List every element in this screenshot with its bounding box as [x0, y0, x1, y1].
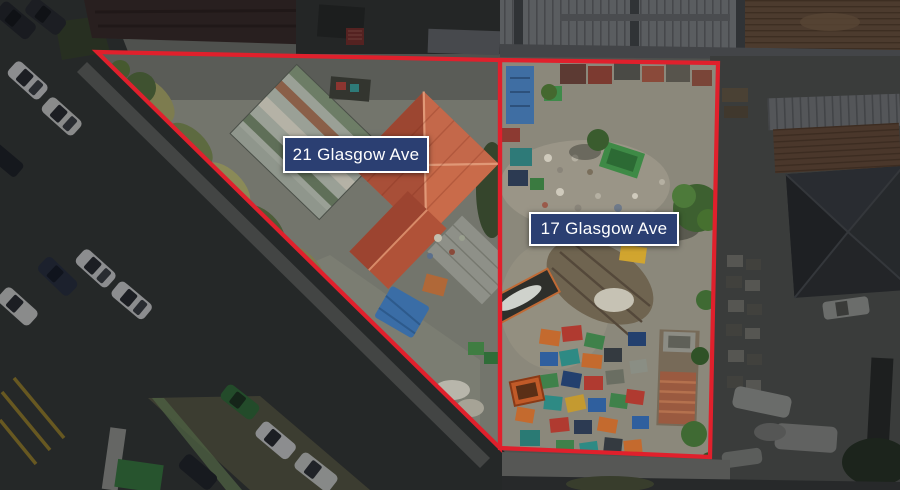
aerial-scene — [0, 0, 900, 490]
rusty-truck — [656, 329, 699, 426]
address-label-21-glasgow-ave: 21 Glasgow Ave — [283, 136, 429, 173]
parcel-17-interior — [480, 55, 725, 472]
address-label-17-glasgow-ave: 17 Glasgow Ave — [529, 212, 679, 246]
orange-container — [510, 376, 544, 406]
aerial-photo: 21 Glasgow Ave 17 Glasgow Ave — [0, 0, 900, 490]
